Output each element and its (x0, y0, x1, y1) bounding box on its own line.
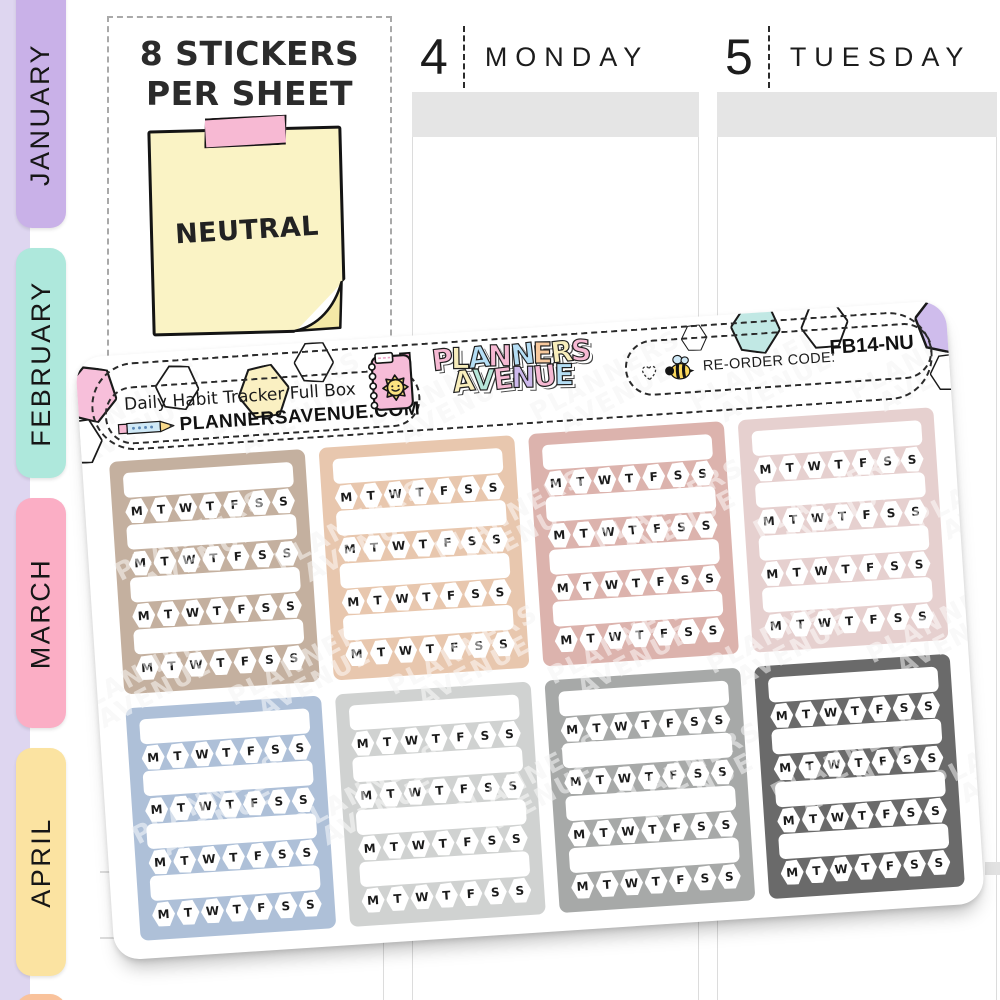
brand-watermark: PLANNERS AVENUE (271, 476, 440, 595)
brand-watermark: PLANNERS AVENUE (225, 611, 394, 730)
day-column-header: 4MONDAY (420, 24, 707, 90)
day-name: TUESDAY (790, 42, 972, 73)
month-tab-april: APRIL (16, 748, 66, 976)
reorder-code: FB14-NU (829, 331, 915, 360)
reorder-label: RE-ORDER CODE: (702, 350, 836, 375)
brand-watermark: PLANNERS AVENUE (608, 718, 777, 837)
date-number: 5 (725, 28, 753, 86)
washi-tape-icon (203, 113, 289, 149)
brand-watermark: PLANNERS AVENUE (544, 590, 713, 709)
promo-heading-line2: PER SHEET (109, 74, 390, 113)
brand-watermark: PLANNERS AVENUE (448, 729, 617, 848)
header-dashed-divider (463, 26, 465, 88)
notebook-icon (361, 349, 419, 414)
brand-watermark: PLANNERS AVENUE (384, 601, 553, 720)
month-tab-label: MARCH (26, 557, 57, 669)
date-number: 4 (420, 28, 448, 86)
day-name: MONDAY (485, 42, 650, 73)
column-header-bar (412, 92, 699, 137)
month-tab-march: MARCH (16, 498, 66, 728)
heart-icon (639, 363, 660, 382)
month-tab-february: FEBRUARY (16, 248, 66, 478)
colorway-label: NEUTRAL (152, 209, 342, 251)
header-dashed-divider (768, 26, 770, 88)
column-header-bar (717, 92, 997, 137)
brand-letter: E (554, 360, 574, 389)
promo-heading-line1: 8 STICKERS (109, 34, 390, 73)
brand-watermark: PLANNERS AVENUE (431, 465, 600, 584)
brand-watermark: PLANNERS AVENUE (288, 739, 457, 858)
product-listing-image: JANUARYFEBRUARYMARCHAPRIL 4MONDAY5TUESDA… (0, 0, 1000, 1000)
brand-watermark: PLANNERS AVENUE (590, 455, 759, 574)
bee-icon (660, 352, 698, 384)
brand-watermark: PLANNERS AVENUE (750, 444, 919, 563)
day-column-header: 5TUESDAY (725, 24, 1000, 90)
month-tab-label: FEBRUARY (26, 280, 57, 447)
brand-watermark: PLANNERS AVENUE (129, 750, 298, 869)
sticker-sheet: PLANNERS AVENUEPLANNERS AVENUEPLANNERS A… (75, 300, 985, 960)
brand-watermark: PLANNERS AVENUE (75, 622, 234, 741)
month-tab-partial (16, 994, 66, 1000)
month-tab-january: JANUARY (16, 0, 66, 228)
background-detail (985, 862, 1000, 875)
month-tab-label: APRIL (26, 817, 57, 908)
month-tab-label: JANUARY (26, 42, 57, 185)
pencil-icon (117, 417, 176, 437)
brand-watermark: PLANNERS AVENUE (704, 579, 873, 698)
brand-watermark: PLANNERS AVENUE (767, 708, 936, 827)
brand-watermark: PLANNERS AVENUE (111, 487, 280, 606)
sticky-note-illustration: NEUTRAL (147, 125, 346, 336)
page-curl-icon (282, 268, 348, 334)
